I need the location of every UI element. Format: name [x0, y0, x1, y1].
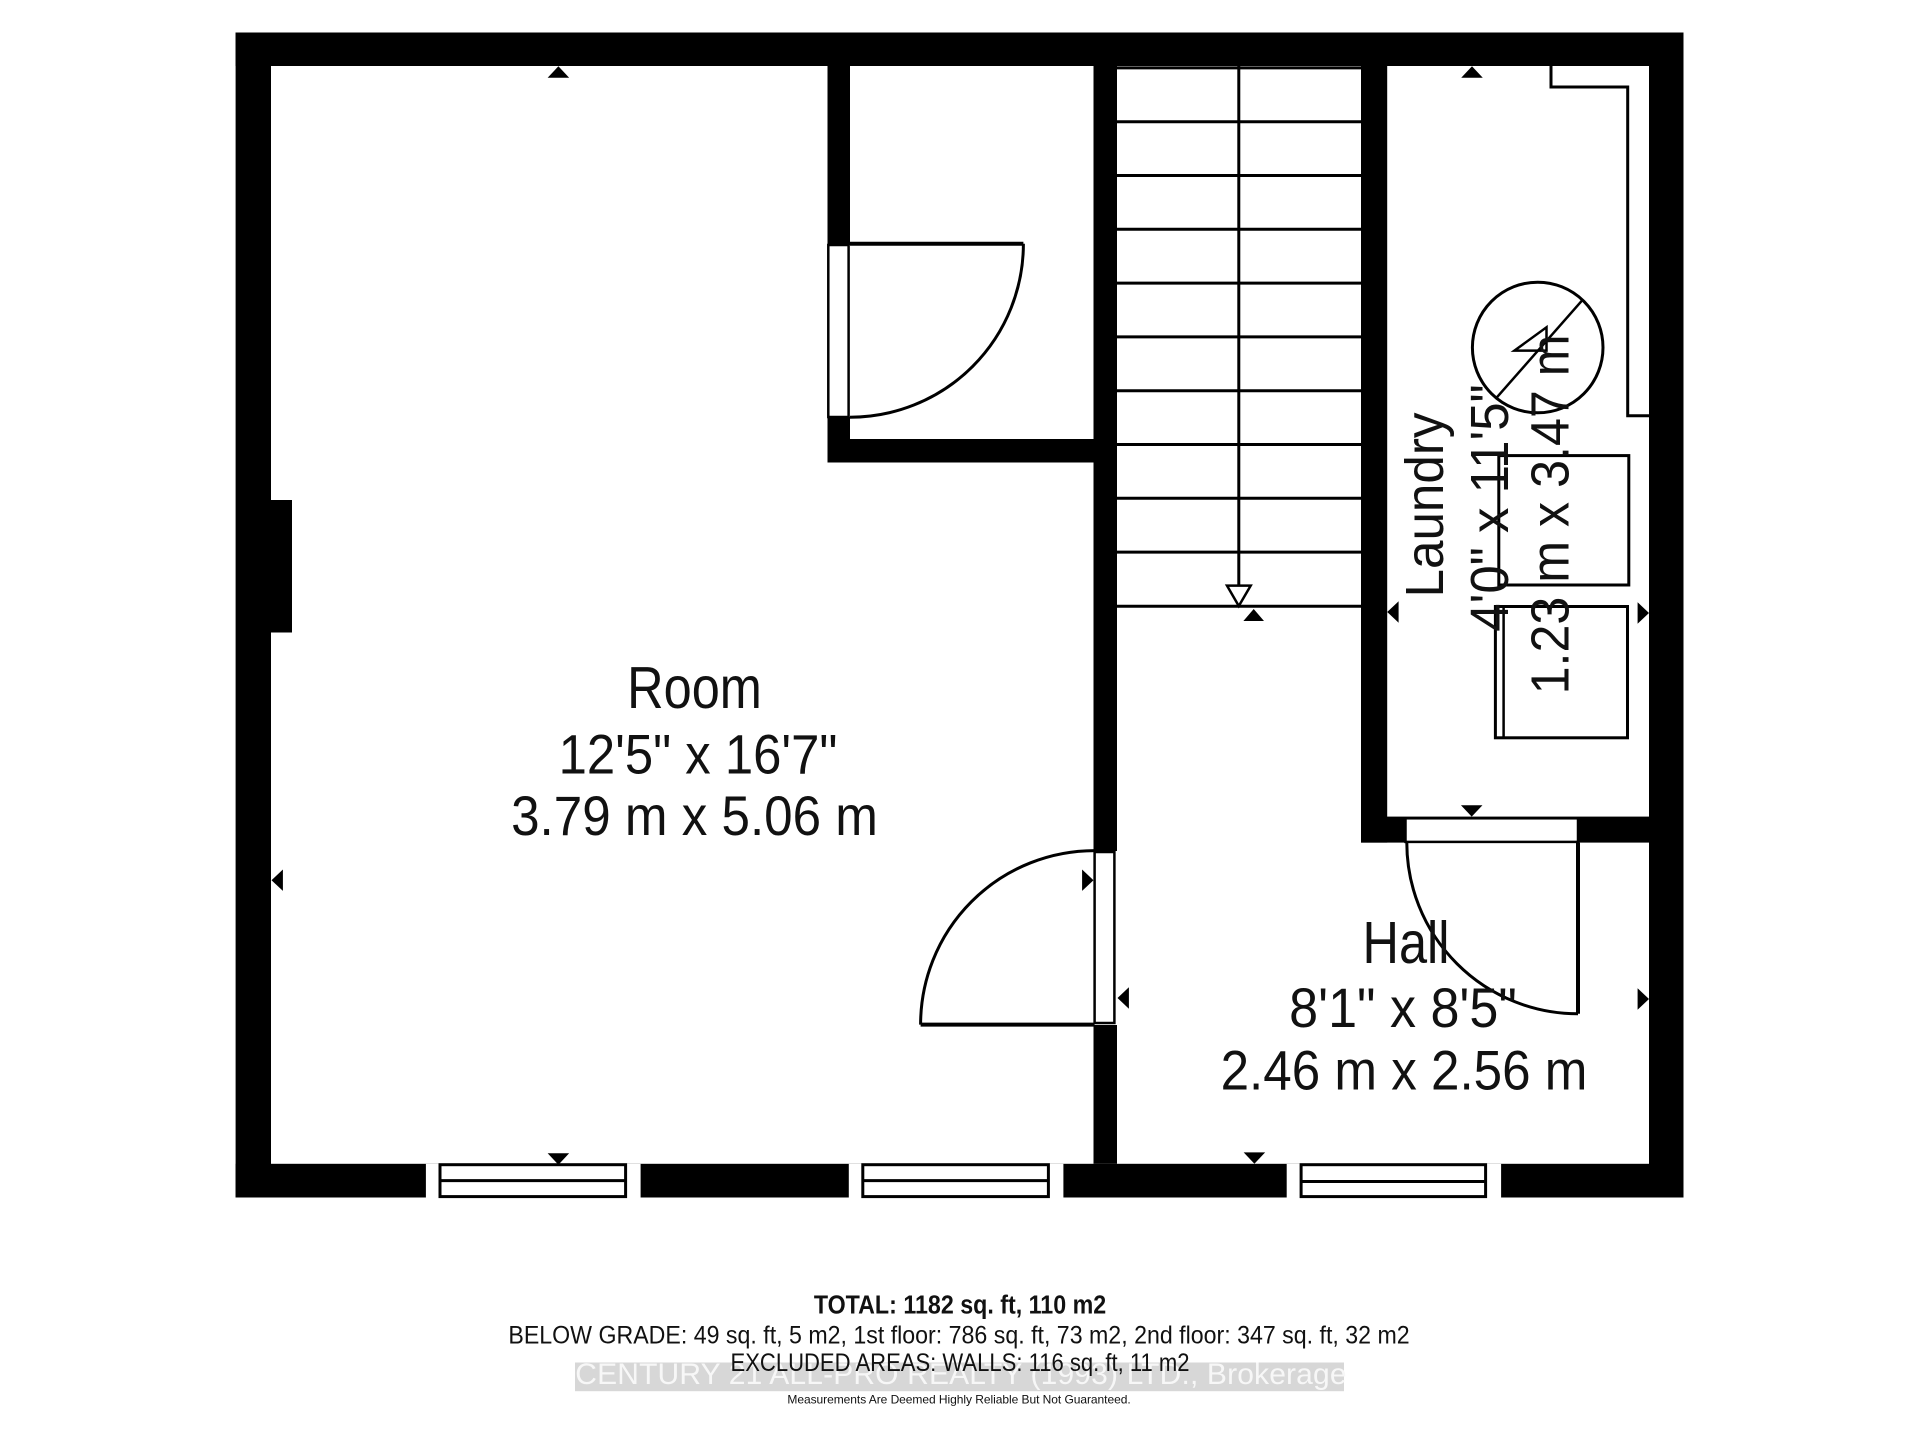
svg-text:Laundry: Laundry	[1395, 412, 1456, 598]
svg-text:Hall: Hall	[1363, 909, 1450, 976]
svg-text:3.79 m x 5.06 m: 3.79 m x 5.06 m	[511, 785, 878, 848]
svg-text:EXCLUDED AREAS: WALLS: 116 sq.: EXCLUDED AREAS: WALLS: 116 sq. ft, 11 m2	[731, 1349, 1190, 1377]
svg-text:12'5" x 16'7": 12'5" x 16'7"	[559, 724, 838, 786]
svg-text:TOTAL: 1182 sq. ft, 110 m2: TOTAL: 1182 sq. ft, 110 m2	[814, 1291, 1106, 1319]
svg-text:Measurements Are Deemed Highly: Measurements Are Deemed Highly Reliable …	[787, 1393, 1130, 1407]
svg-text:1.23 m x 3.47 m: 1.23 m x 3.47 m	[1521, 334, 1581, 694]
svg-text:8'1" x 8'5": 8'1" x 8'5"	[1289, 977, 1517, 1039]
svg-text:2.46 m x 2.56 m: 2.46 m x 2.56 m	[1221, 1039, 1588, 1102]
svg-text:4'0" x 11'5": 4'0" x 11'5"	[1460, 384, 1521, 631]
svg-text:BELOW GRADE: 49 sq. ft, 5 m2,: BELOW GRADE: 49 sq. ft, 5 m2, 1st floor:…	[508, 1322, 1409, 1350]
svg-text:Room: Room	[627, 654, 762, 721]
